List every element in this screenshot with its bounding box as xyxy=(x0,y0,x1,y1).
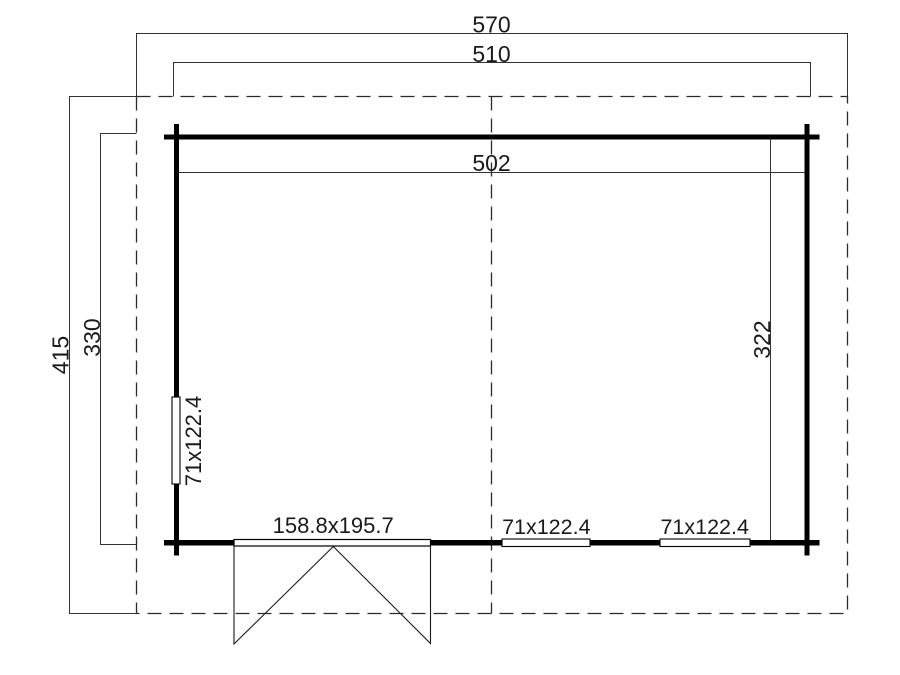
svg-text:71x122.4: 71x122.4 xyxy=(660,515,749,539)
svg-text:330: 330 xyxy=(79,318,105,356)
svg-text:510: 510 xyxy=(472,41,510,67)
svg-text:570: 570 xyxy=(472,12,510,38)
svg-text:502: 502 xyxy=(472,150,510,176)
svg-text:71x122.4: 71x122.4 xyxy=(502,515,591,539)
svg-text:415: 415 xyxy=(48,336,74,374)
svg-text:322: 322 xyxy=(749,320,775,358)
svg-text:158.8x195.7: 158.8x195.7 xyxy=(273,513,394,538)
svg-text:71x122.4: 71x122.4 xyxy=(181,396,206,487)
